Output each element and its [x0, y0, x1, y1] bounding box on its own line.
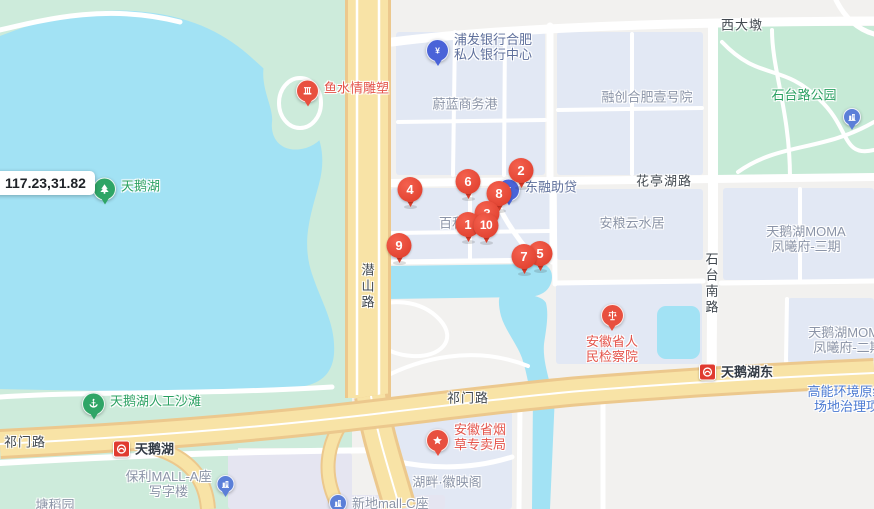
- scales-icon: [600, 304, 623, 327]
- road-label-xidadun: 西大墩: [721, 15, 763, 34]
- poi-fish-water-sculpture[interactable]: 鱼水情雕塑: [296, 77, 389, 100]
- poi-weilan-business-port[interactable]: 蔚蓝商务港: [432, 97, 497, 112]
- road-label-qimen-road-west: 祁门路: [4, 432, 46, 451]
- poi-procuratorate[interactable]: 安徽省人 民检察院: [586, 304, 638, 364]
- tree-icon: [93, 178, 116, 201]
- map-marker-7[interactable]: 7: [512, 244, 537, 275]
- poi-label: 石台路公园: [771, 88, 836, 103]
- star-icon: [426, 429, 449, 452]
- map-marker-4[interactable]: 4: [398, 177, 423, 208]
- poi-rongchuang-hefei-no1[interactable]: 融创合肥壹号院: [601, 90, 692, 105]
- poi-swan-lake[interactable]: 天鹅湖: [93, 175, 160, 198]
- poi-label: 湖畔·徽映阁: [412, 475, 481, 490]
- marker-number: 7: [512, 244, 537, 269]
- poi-label: 天鹅湖人工沙滩: [110, 394, 201, 409]
- metro-icon: [113, 441, 130, 458]
- poi-label: 安徽省人 民检察院: [586, 334, 638, 364]
- road-label-qimen-road-mid: 祁门路: [447, 388, 489, 407]
- poi-label: 天鹅湖东: [721, 365, 773, 380]
- marker-number: 6: [456, 169, 481, 194]
- poi-label: 蔚蓝商务港: [432, 97, 497, 112]
- poi-label: 保利MALL-A座 写字楼: [126, 469, 212, 499]
- poi-label: 融创合肥壹号院: [601, 90, 692, 105]
- poi-baoli-mall-a[interactable]: 保利MALL-A座 写字楼: [126, 469, 235, 499]
- poi-shitai-road-park[interactable]: 石台路公园: [771, 88, 836, 103]
- poi-tobacco-bureau[interactable]: 安徽省烟 草专卖局: [426, 422, 506, 452]
- poi-swan-lake-beach[interactable]: 天鹅湖人工沙滩: [82, 390, 201, 413]
- poi-label: 天鹅湖: [135, 442, 174, 457]
- building-icon: [329, 494, 347, 509]
- poi-anliang-yunshuiju[interactable]: 安粮云水居: [599, 216, 664, 231]
- map-marker-9[interactable]: 9: [387, 233, 412, 264]
- poi-xindi-mall-c[interactable]: 新地mall-C座: [329, 494, 429, 509]
- poi-label: 塘稻园: [35, 498, 74, 509]
- poi-label: 天鹅湖MOMA 凤曦府-三期: [766, 224, 845, 254]
- poi-label: 安徽省烟 草专卖局: [454, 422, 506, 452]
- metro-icon: [699, 364, 716, 381]
- monument-icon: [296, 80, 319, 103]
- road-label-huatinghu-road: 花亭湖路: [636, 171, 692, 190]
- map-marker-2[interactable]: 2: [509, 158, 534, 189]
- building-icon: [216, 475, 234, 493]
- poi-label: 新地mall-C座: [352, 496, 429, 509]
- map-overlay: 117.23,31.82 西大墩花亭湖路祁门路祁门路潜山路石台南路浦发银行合肥 …: [0, 0, 874, 509]
- poi-label: 鱼水情雕塑: [324, 81, 389, 96]
- poi-metro-swan-lake[interactable]: 天鹅湖: [113, 441, 174, 458]
- map-marker-10[interactable]: 10: [474, 213, 499, 244]
- marker-number: 9: [387, 233, 412, 258]
- poi-metro-swan-lake-east[interactable]: 天鹅湖东: [699, 364, 773, 381]
- map-canvas[interactable]: ¥: [0, 0, 874, 509]
- beach-icon: [82, 393, 105, 416]
- poi-pufa-bank-center[interactable]: 浦发银行合肥 私人银行中心: [426, 32, 532, 62]
- poi-label: 天鹅湖: [121, 179, 160, 194]
- marker-number: 2: [509, 158, 534, 183]
- poi-gaoneng-environment-site[interactable]: 高能环境原绿地 场地治理项目: [807, 384, 874, 414]
- poi-park-facility[interactable]: [843, 108, 861, 126]
- poi-label: 浦发银行合肥 私人银行中心: [454, 32, 532, 62]
- marker-number: 10: [474, 213, 499, 238]
- poi-label: 安粮云水居: [599, 216, 664, 231]
- poi-tangdao[interactable]: 塘稻园: [35, 498, 74, 509]
- road-label-qianshan-road: 潜山路: [358, 263, 377, 311]
- building-icon: [843, 108, 861, 126]
- poi-swan-lake-moma-phase3[interactable]: 天鹅湖MOMA 凤曦府-三期: [766, 224, 845, 254]
- road-label-shitai-south-road: 石台南路: [702, 252, 721, 316]
- poi-label: 高能环境原绿地 场地治理项目: [807, 384, 874, 414]
- bank-icon: [426, 39, 449, 62]
- map-marker-6[interactable]: 6: [456, 169, 481, 200]
- poi-label: 天鹅湖MOMA 凤曦府-二期: [808, 325, 874, 355]
- coordinate-readout: 117.23,31.82: [0, 171, 95, 195]
- poi-hupan-huiyingge[interactable]: 湖畔·徽映阁: [412, 475, 481, 490]
- poi-swan-lake-moma-phase2[interactable]: 天鹅湖MOMA 凤曦府-二期: [808, 325, 874, 355]
- marker-number: 4: [398, 177, 423, 202]
